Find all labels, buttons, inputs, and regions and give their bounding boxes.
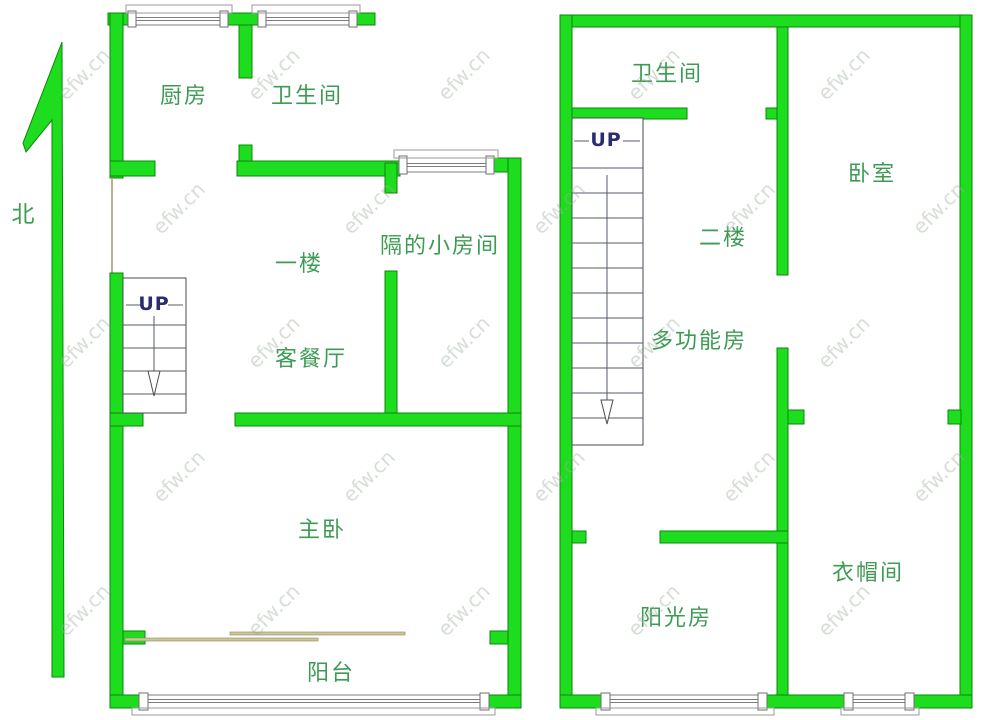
wall-segment [948,410,961,424]
window-sill [132,708,495,715]
north-label: 北 [12,195,35,229]
window-end-cap [844,693,853,710]
window [258,13,357,25]
room-label-balcony: 阳台 [307,655,355,687]
window-end-cap [601,693,610,710]
north-arrow [23,42,64,677]
floor1-title: 一楼 [275,246,323,278]
window-end-cap [139,693,148,710]
window [601,695,767,708]
wall-segment [560,15,572,708]
window-sill [394,150,498,158]
wall-opening-line [111,178,113,274]
wall-segment [239,25,252,78]
room-label-sunroom: 阳光房 [640,600,712,632]
room-label-living-dining: 客餐厅 [275,341,347,373]
wall-segment [235,413,521,426]
window [139,695,489,708]
floorplan-drawing [0,0,1000,720]
wall-segment [508,158,521,708]
floor2-title: 二楼 [699,220,747,252]
wall-segment [788,410,804,424]
wall-segment [123,631,145,644]
window-sills [126,5,919,715]
window-end-cap [399,156,407,174]
window-end-cap [486,156,494,174]
window-end-cap [758,693,767,710]
window-sill [126,5,232,13]
wall-segment [237,161,400,176]
wall-segment [110,413,143,426]
room-label-multifunction: 多功能房 [651,323,747,355]
room-label-cloakroom: 衣帽间 [832,555,904,587]
window-sill [596,708,774,715]
room-label-bedroom: 卧室 [848,156,896,188]
floorplan-canvas: 厨房 卫生间 隔的小房间 一楼 客餐厅 主卧 阳台 卫生间 卧室 二楼 多功能房… [0,0,1000,720]
window-end-cap [905,693,914,710]
stairs-floor2 [572,118,643,445]
wall-segment [572,531,586,543]
sliding-door [125,632,405,641]
room-label-small-room: 隔的小房间 [380,228,500,260]
wall-segment [110,161,155,176]
window-sill [252,5,360,13]
room-label-kitchen: 厨房 [160,78,208,110]
wall-segment [385,271,397,426]
wall-segment [110,13,123,178]
window-end-cap [480,693,489,710]
wall-segment [777,348,788,695]
wall-segment [560,15,972,27]
wall-segment [766,108,777,119]
stairs-up-label-f2: UP [590,129,621,151]
room-label-master-bedroom: 主卧 [298,512,346,544]
room-label-bathroom-f1: 卫生间 [271,78,343,110]
wall-segment [572,108,687,119]
sliding-door-panel [125,638,318,641]
stairs-up-label-f1: UP [138,293,169,315]
room-label-bathroom-f2: 卫生间 [631,56,703,88]
wall-segment [490,631,508,644]
wall-segment [660,531,788,543]
wall-segment [110,273,123,708]
wall-segment [960,15,972,708]
window [399,158,494,172]
wall-segment [385,163,397,193]
window [844,695,914,708]
sliding-door-panel [230,632,405,635]
wall-segment [777,27,788,275]
window [128,13,228,25]
